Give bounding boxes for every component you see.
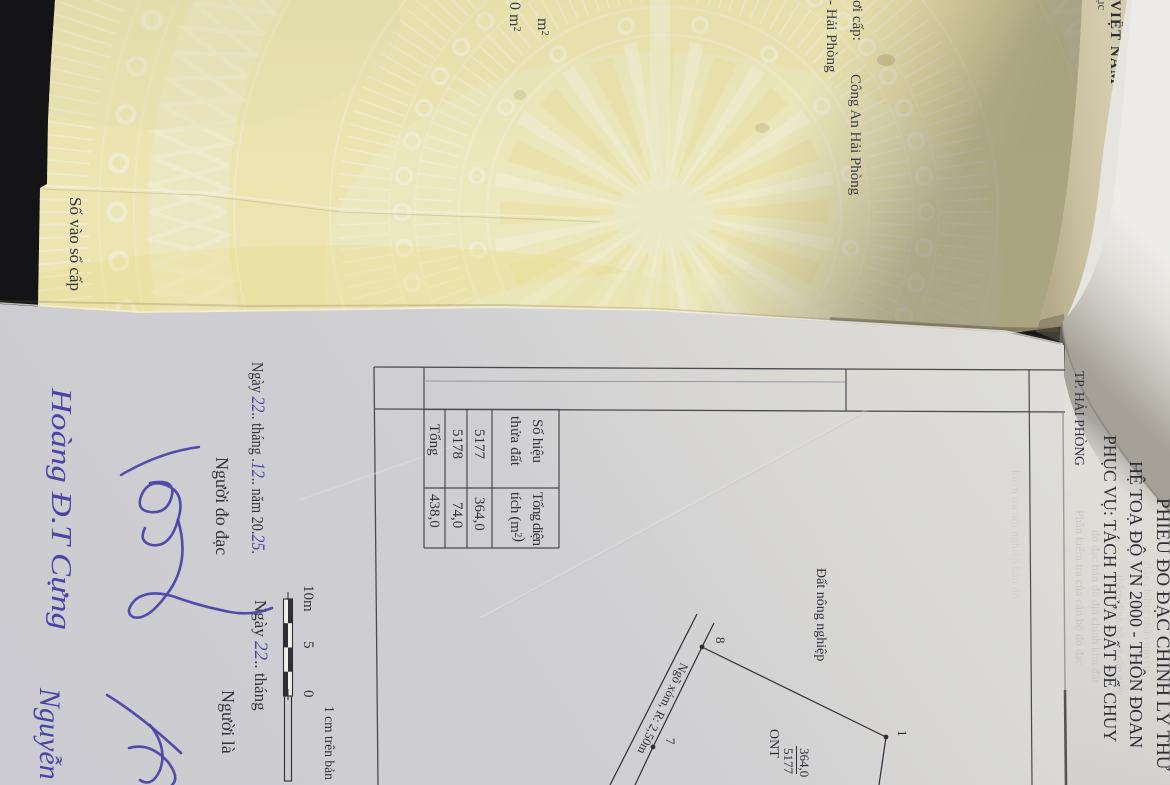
svg-text:5178: 5178 (449, 429, 465, 459)
svg-text:364,0: 364,0 (797, 748, 812, 777)
svg-text:Nguyễn Văn: Nguyễn Văn (33, 687, 66, 785)
svg-text:Đất nông nghiệp: Đất nông nghiệp (813, 568, 828, 661)
svg-text:1: 1 (895, 730, 910, 737)
svg-text:364,0: 364,0 (471, 497, 487, 531)
svg-text:Tổng diện: Tổng diện (529, 492, 545, 547)
svg-text:5177: 5177 (781, 748, 796, 775)
svg-text:ục: ục (1095, 0, 1110, 11)
svg-text:Ngày 22.. tháng: Ngày 22.. tháng (250, 600, 271, 711)
svg-text:8: 8 (713, 637, 728, 644)
svg-text:Phần kiểm tra của cán bộ đo đạ: Phần kiểm tra của cán bộ đo đạc (1073, 510, 1087, 666)
svg-text:74,0: 74,0 (449, 502, 465, 528)
svg-text:5177: 5177 (471, 429, 487, 460)
svg-text:đo đạc bản đồ địa chính khu đấ: đo đạc bản đồ địa chính khu đất (1089, 530, 1103, 684)
svg-text:Hoàng Đ.T Cựng: Hoàng Đ.T Cựng (45, 387, 76, 630)
svg-text:thẩm định hồ sơ cấp giấy: thẩm định hồ sơ cấp giấy (1113, 575, 1127, 696)
svg-text:Số hiệu: Số hiệu (529, 419, 545, 464)
svg-text:1 cm trên bản: 1 cm trên bản (322, 706, 337, 780)
svg-text:Người đo đạc: Người đo đạc (212, 457, 232, 555)
svg-text:giấy chứng nhận quyền: giấy chứng nhận quyền (1141, 560, 1155, 672)
svg-text:thửa đất: thửa đất (507, 416, 523, 467)
svg-text:438,0: 438,0 (426, 494, 442, 528)
svg-text:Công An Hải Phòng: Công An Hải Phòng (847, 74, 863, 196)
svg-text:7: 7 (663, 738, 678, 745)
svg-text:10m: 10m (300, 585, 316, 612)
svg-text:Ngày 22.. tháng .12.. năm 20.2: Ngày 22.. tháng .12.. năm 20.25. (247, 362, 268, 554)
svg-text:5: 5 (300, 641, 316, 649)
svg-text:Tổng: Tổng (426, 424, 442, 456)
svg-text:- Hải Phòng: - Hải Phòng (823, 0, 839, 73)
svg-text:kiểm tra nội nghiệp bản đồ: kiểm tra nội nghiệp bản đồ (1009, 470, 1023, 599)
svg-text:ơi cấp:: ơi cấp: (849, 0, 865, 41)
svg-text:Số vào sổ cấp: Số vào sổ cấp (66, 197, 85, 291)
svg-text:Người là: Người là (218, 690, 238, 754)
svg-text:0: 0 (300, 690, 316, 698)
svg-text:ONT: ONT (766, 729, 781, 758)
svg-text:TP. HẢI PHÒNG: TP. HẢI PHÒNG (1072, 371, 1087, 466)
